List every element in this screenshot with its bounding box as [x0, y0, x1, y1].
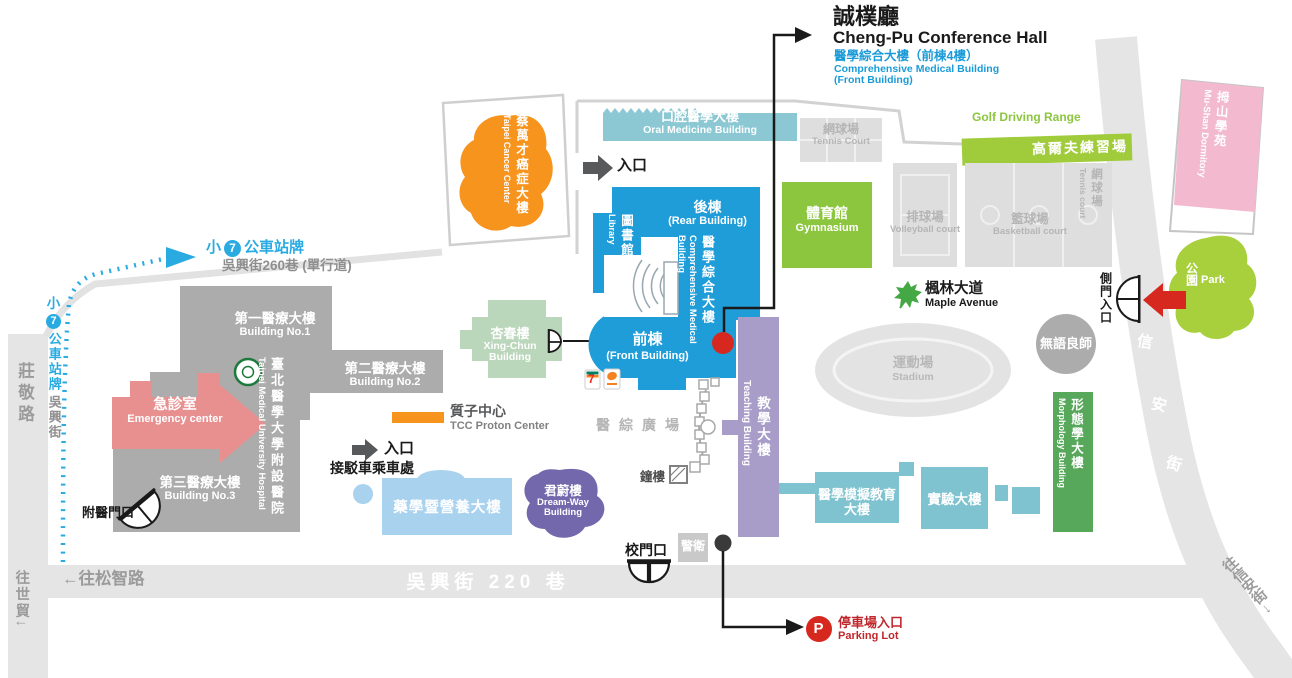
- label-entrance-top: 入口: [617, 158, 647, 175]
- bus-line-badge: 7: [224, 240, 241, 257]
- bus-stop-text: 公車站牌: [244, 240, 304, 257]
- bus-street-left: 吳興街: [46, 395, 61, 440]
- label-proton-zh: 質子中心: [450, 404, 506, 420]
- label-xingchun-en2: Building: [472, 352, 548, 364]
- road-wuxing-220: [8, 565, 1206, 598]
- label-rear-zh: 後棟: [650, 200, 765, 216]
- bus-line-badge-left: 7: [46, 314, 61, 329]
- shuttle-stop-dot: [353, 484, 373, 504]
- label-entrance-bottom: 入口: [384, 441, 414, 458]
- label-no3-en: Building No.3: [135, 490, 265, 502]
- hall-subtitle-zh: 醫學綜合大樓（前棟4樓）: [834, 49, 978, 63]
- hall-subtitle-en2: (Front Building): [834, 75, 913, 87]
- label-shuttle: 接駁車乘車處: [330, 461, 414, 477]
- label-gym-en: Gymnasium: [782, 222, 872, 234]
- label-tennis-top-en: Tennis Court: [800, 137, 882, 148]
- side-gate-icon: [1117, 277, 1139, 321]
- label-maple-en: Maple Avenue: [925, 297, 998, 309]
- label-silent-mentor: 無語良師: [1031, 337, 1101, 352]
- building-shape-proton-center: [392, 412, 444, 423]
- building-shape-front-tab: [638, 374, 686, 390]
- label-oral-zh: 口腔醫學大樓: [603, 110, 797, 125]
- road-label-wuxing220: 吳興街 220 巷: [378, 572, 598, 593]
- label-front-en: (Front Building): [590, 350, 705, 362]
- bus-prefix: 小: [206, 240, 221, 257]
- seven-eleven-glyph: 7: [588, 373, 595, 386]
- label-proton-en: TCC Proton Center: [450, 420, 549, 432]
- label-volleyball-en: Volleyball court: [880, 225, 970, 236]
- parking-callout-arrow: [786, 619, 804, 635]
- label-sim-zh1: 醫學模擬教育: [815, 488, 899, 503]
- label-stadium-en: Stadium: [863, 372, 963, 384]
- louisa-coffee-icon: [604, 369, 620, 389]
- entrance-arrow-bottom-icon: [352, 439, 378, 461]
- label-no1-en: Building No.1: [200, 326, 350, 338]
- label-maple-zh: 楓林大道: [925, 281, 983, 297]
- label-emergency-zh: 急診室: [115, 397, 235, 413]
- building-shape-teaching-tab: [722, 420, 738, 435]
- hall-title-en: Cheng-Pu Conference Hall: [833, 28, 1047, 47]
- bus-prefix-left: 小: [47, 296, 61, 311]
- label-basketball-en: Basketball court: [975, 227, 1085, 238]
- label-dreamway-zh: 君蔚樓: [527, 484, 599, 498]
- building-shape-gymnasium-notch: [858, 256, 872, 268]
- label-parking-zh: 停車場入口: [838, 616, 903, 631]
- label-no2-zh: 第二醫療大樓: [330, 361, 440, 376]
- label-front-zh: 前棟: [590, 332, 705, 349]
- road-label-xinan-2: 安: [1149, 395, 1168, 415]
- road-label-to-worldtrade: 往世貿↓: [13, 570, 29, 629]
- label-no3-zh: 第三醫療大樓: [135, 475, 265, 490]
- label-basketball-zh: 籃球場: [975, 212, 1085, 226]
- label-bell-tower: 鐘樓: [640, 470, 665, 484]
- campus-map: 誠樸廳 Cheng-Pu Conference Hall 醫學綜合大樓（前棟4樓…: [0, 0, 1292, 678]
- label-library: 圖書館 Library: [607, 214, 636, 294]
- label-morphology: 形態學大樓 Morphology Building: [1057, 398, 1086, 526]
- bus-stop-label-top: 小 7 公車站牌: [206, 240, 304, 257]
- building-shape-park: [1169, 236, 1256, 339]
- label-tennis-right: 網球場 Tennis court: [1078, 168, 1104, 268]
- road-label-to-songzhi: ←往松智路: [62, 570, 145, 588]
- label-golf-en: Golf Driving Range: [972, 111, 1081, 124]
- entrance-arrow-top-icon: [583, 155, 613, 181]
- label-gym-zh: 體育館: [782, 206, 872, 222]
- label-stadium-zh: 運動場: [863, 355, 963, 370]
- label-hospital: 臺北醫學大學附設醫院 Taipei Medical University Hos…: [256, 357, 286, 532]
- hall-callout-arrow: [795, 27, 812, 43]
- label-cancer-center: 蔡萬才癌症大樓 Taipei Cancer Center: [502, 114, 531, 232]
- road-label-wuxing260: 吳興街260巷 (單行道): [222, 258, 352, 273]
- label-oral-en: Oral Medicine Building: [603, 125, 797, 137]
- label-lab-zh: 實驗大樓: [921, 492, 988, 507]
- label-park-en: Park: [1201, 274, 1225, 286]
- label-sim-zh2: 大樓: [815, 503, 899, 518]
- label-dreamway-en2: Building: [527, 508, 599, 519]
- label-teaching: 教學大樓 Teaching Building: [741, 380, 772, 505]
- label-park-zh: 公園: [1184, 262, 1197, 286]
- label-tennis-top-zh: 網球場: [800, 123, 882, 136]
- label-parking-en: Parking Lot: [838, 630, 899, 642]
- label-school-gate: 校門口: [625, 543, 667, 559]
- parking-icon-letter: P: [814, 621, 824, 638]
- bus-stop-text-left: 公車站牌: [46, 332, 61, 392]
- road-label-xinan-1: 信: [1136, 333, 1154, 353]
- gate-marker-dot: [715, 535, 732, 552]
- label-no2-en: Building No.2: [330, 376, 440, 388]
- label-pharmacy: 藥學暨營養大樓: [385, 500, 510, 516]
- label-plaza: 醫綜廣場: [596, 418, 688, 434]
- bus-stop-label-left: 小 7 公車站牌 吳興街: [46, 296, 61, 440]
- walkway-apse: [701, 420, 715, 434]
- label-no1-zh: 第一醫療大樓: [200, 311, 350, 326]
- road-label-zhuangjing: 莊敬路: [15, 362, 33, 427]
- label-side-gate: 側門入口: [1098, 272, 1111, 324]
- hall-title-zh: 誠樸廳: [833, 5, 899, 30]
- bus-route-arrow-icon: [166, 247, 196, 268]
- label-emergency-en: Emergency center: [115, 413, 235, 425]
- label-guard: 警衛: [678, 540, 708, 553]
- label-volleyball-zh: 排球場: [880, 210, 970, 224]
- label-hospital-gate: 附醫門口: [82, 506, 134, 521]
- maple-leaf-icon: [894, 281, 922, 308]
- label-rear-en: (Rear Building): [650, 215, 765, 227]
